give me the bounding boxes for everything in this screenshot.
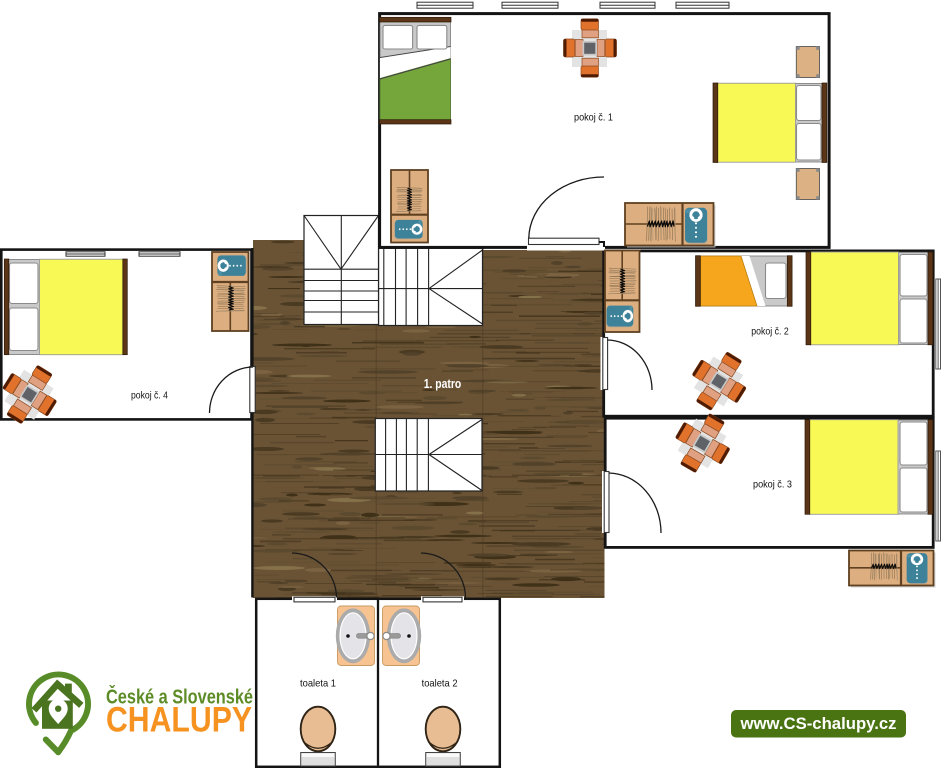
svg-text:pokoj č. 4: pokoj č. 4 [131, 390, 168, 402]
svg-text:pokoj č. 2: pokoj č. 2 [751, 326, 789, 338]
svg-text:pokoj č. 3: pokoj č. 3 [753, 479, 792, 491]
svg-text:pokoj č. 1: pokoj č. 1 [574, 112, 613, 124]
svg-text:toaleta 2: toaleta 2 [422, 678, 458, 690]
svg-text:CHALUPY: CHALUPY [106, 701, 252, 740]
svg-text:www.CS-chalupy.cz: www.CS-chalupy.cz [739, 715, 896, 733]
svg-text:1. patro: 1. patro [424, 377, 462, 391]
svg-text:toaleta 1: toaleta 1 [300, 678, 336, 690]
